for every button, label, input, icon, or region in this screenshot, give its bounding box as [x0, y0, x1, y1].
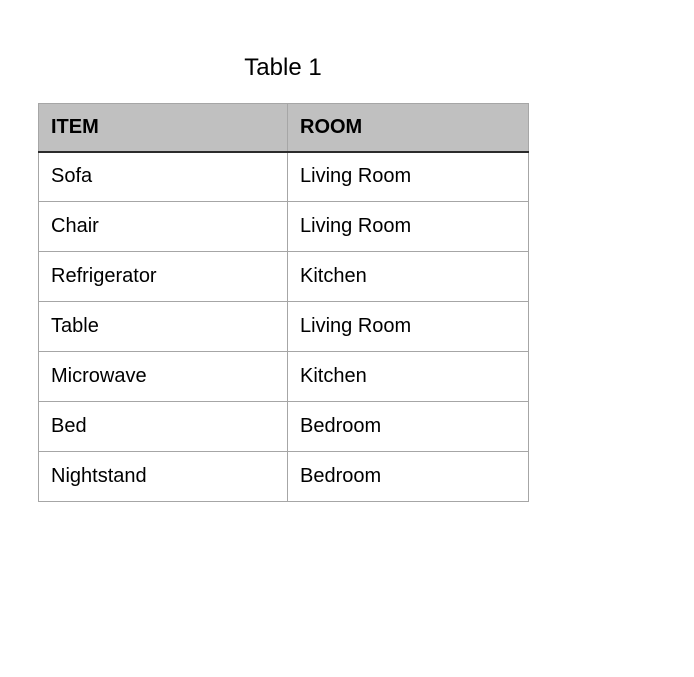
item-cell: Table: [39, 302, 288, 352]
table-row: TableLiving Room: [39, 302, 529, 352]
header-cell-room: ROOM: [288, 104, 529, 152]
room-cell: Living Room: [288, 152, 529, 202]
table-header: ITEM ROOM: [39, 104, 529, 152]
table-body: SofaLiving RoomChairLiving RoomRefrigera…: [39, 152, 529, 502]
room-cell: Kitchen: [288, 352, 529, 402]
room-cell: Bedroom: [288, 452, 529, 502]
item-cell: Bed: [39, 402, 288, 452]
page-content: Table 1 ITEM ROOM SofaLiving RoomChairLi…: [38, 53, 528, 502]
item-cell: Refrigerator: [39, 252, 288, 302]
table-title: Table 1: [38, 53, 528, 82]
item-cell: Chair: [39, 202, 288, 252]
table-row: ChairLiving Room: [39, 202, 529, 252]
item-cell: Nightstand: [39, 452, 288, 502]
room-cell: Living Room: [288, 302, 529, 352]
room-cell: Living Room: [288, 202, 529, 252]
item-cell: Microwave: [39, 352, 288, 402]
table-row: SofaLiving Room: [39, 152, 529, 202]
table-row: BedBedroom: [39, 402, 529, 452]
header-row: ITEM ROOM: [39, 104, 529, 152]
table-row: RefrigeratorKitchen: [39, 252, 529, 302]
room-cell: Kitchen: [288, 252, 529, 302]
item-cell: Sofa: [39, 152, 288, 202]
header-cell-item: ITEM: [39, 104, 288, 152]
room-cell: Bedroom: [288, 402, 529, 452]
furniture-table: ITEM ROOM SofaLiving RoomChairLiving Roo…: [38, 103, 529, 502]
table-row: NightstandBedroom: [39, 452, 529, 502]
table-row: MicrowaveKitchen: [39, 352, 529, 402]
